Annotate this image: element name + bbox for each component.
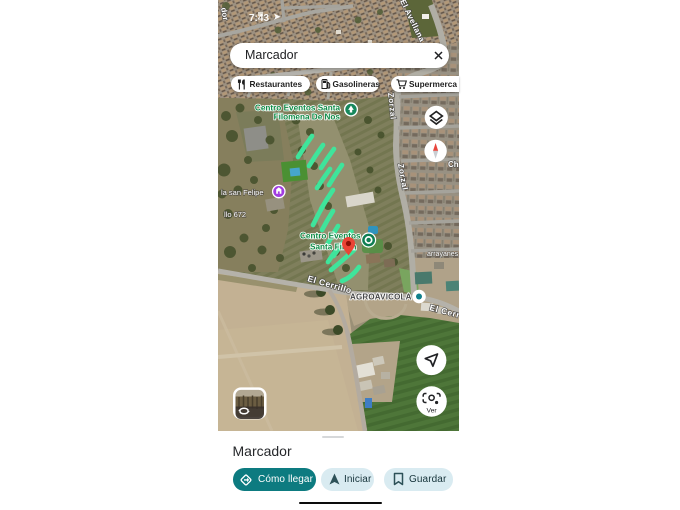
svg-text:Ch: Ch	[448, 160, 459, 169]
svg-text:llo 672: llo 672	[224, 210, 246, 219]
svg-text:arrayanes: arrayanes	[427, 251, 459, 258]
svg-text:Filomena De Nos: Filomena De Nos	[274, 113, 341, 122]
svg-text:la san Felipe: la san Felipe	[221, 188, 264, 197]
svg-text:7:43: 7:43	[249, 13, 269, 24]
svg-text:Centro Eventos Santa: Centro Eventos Santa	[255, 104, 341, 113]
svg-text:AGROAVICOLA: AGROAVICOLA	[350, 293, 412, 302]
svg-text:Ver: Ver	[426, 408, 437, 415]
